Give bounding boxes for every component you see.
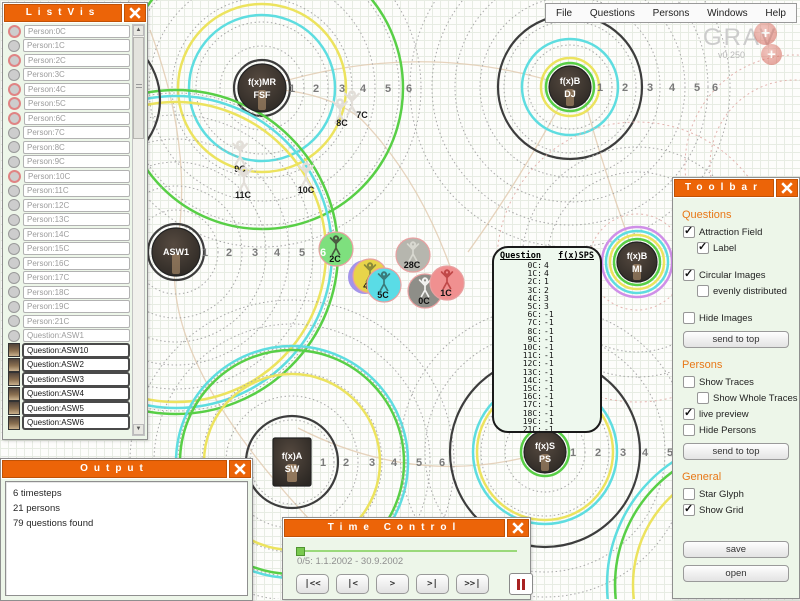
ring-number: 4 (360, 83, 367, 95)
menu-item-help[interactable]: Help (765, 8, 786, 19)
list-item-label: Person:12C (23, 199, 130, 212)
question-node-fx-b-mi[interactable]: f(x)BMI (617, 242, 657, 282)
ring-number: 5 (416, 457, 422, 469)
ring-number: 2 (313, 83, 319, 95)
list-item[interactable]: Question:ASW6 (5, 416, 145, 431)
checkbox-row: Star Glyph (683, 488, 799, 500)
ring-number: 6 (406, 83, 412, 95)
list-item-label: Person:14C (23, 228, 130, 241)
ring-number: 6 (712, 82, 718, 94)
person-status-icon (8, 69, 20, 81)
question-photo-icon (8, 358, 20, 372)
checkbox-label: evenly distributed (713, 286, 787, 297)
list-item-label: Question:ASW6 (23, 416, 129, 429)
question-photo-icon (8, 401, 20, 415)
list-item-label: Person:10C (24, 170, 130, 183)
menu-item-persons[interactable]: Persons (653, 8, 690, 19)
ring-number: 5 (385, 83, 391, 95)
list-item[interactable]: Person:6C (5, 111, 145, 126)
ghost-person-label: 11C (235, 190, 252, 200)
question-node-fx-s-ps[interactable]: f(x)SPS (524, 431, 566, 473)
output-panel: Output 6 timesteps21 persons79 questions… (0, 458, 253, 601)
person-status-icon (8, 112, 21, 125)
list-item[interactable]: Question:ASW3 (5, 372, 145, 387)
person-bubble-28C[interactable]: 28C (396, 238, 430, 272)
checkbox-label: Hide Images (699, 313, 752, 324)
close-icon[interactable] (124, 4, 146, 22)
person-status-icon (8, 40, 20, 52)
person-status-icon (8, 97, 21, 110)
person-status-icon (8, 199, 20, 211)
checkbox-hide-persons[interactable] (683, 424, 695, 436)
time-button[interactable]: |<< (296, 574, 329, 594)
ring-number: 1 (597, 82, 603, 94)
question-node-label: f(x)B (560, 76, 581, 86)
listvis-titlebar[interactable]: ListVis (3, 3, 147, 23)
list-item[interactable]: Question:ASW5 (5, 401, 145, 416)
checkbox-row: Show Grid (683, 504, 799, 516)
checkbox-label: Show Traces (699, 377, 754, 388)
person-status-icon (8, 301, 20, 313)
time-button[interactable]: > (376, 574, 409, 594)
list-item[interactable]: Person:19C (5, 300, 145, 315)
person-bubble-label: 28C (404, 260, 421, 270)
checkbox-attraction-field[interactable] (683, 226, 695, 238)
ring-number: 5 (694, 82, 700, 94)
list-item-label: Question:ASW5 (23, 402, 129, 415)
open-button[interactable]: open (683, 565, 789, 582)
question-value-table[interactable]: Question f(x)SPS 0C:41C:42C:13C:24C:35C:… (492, 246, 602, 433)
time-buttons: |<<|<>>|>>| (296, 573, 533, 595)
list-item-label: Question:ASW2 (23, 358, 129, 371)
list-item[interactable]: Person:9C (5, 155, 145, 170)
section-heading-questions: Questions (682, 209, 799, 221)
question-table-rows: 0C:41C:42C:13C:24C:35C:36C:-17C:-18C:-19… (500, 262, 594, 433)
list-item[interactable]: Person:14C (5, 227, 145, 242)
checkbox-show-traces[interactable] (683, 376, 695, 388)
list-item-label: Person:9C (23, 155, 130, 168)
question-node-label: f(x)MR (248, 77, 276, 87)
ring-number: 1 (289, 83, 295, 95)
ring-number: 6 (320, 247, 326, 259)
checkbox-row: Attraction Field (683, 226, 799, 238)
checkbox-evenly-distributed[interactable] (697, 285, 709, 297)
scroll-thumb[interactable] (133, 37, 144, 139)
question-table-col1: Question (500, 251, 541, 261)
close-icon[interactable] (507, 519, 529, 537)
list-item[interactable]: Question:ASW1 (5, 329, 145, 344)
output-line: 79 questions found (13, 516, 240, 531)
list-item-label: Person:1C (23, 39, 130, 52)
person-status-icon (8, 170, 21, 183)
question-node-label: MI (632, 264, 642, 274)
magnet-icon: + (754, 22, 777, 45)
close-icon[interactable] (776, 179, 798, 197)
list-item-label: Question:ASW4 (23, 387, 129, 400)
question-table-col2: f(x)SPS (558, 251, 594, 261)
person-status-icon (8, 83, 21, 96)
list-item-label: Question:ASW1 (23, 329, 130, 342)
list-item-label: Person:21C (23, 315, 130, 328)
list-item[interactable]: Person:0C (5, 24, 145, 39)
checkbox-live-preview[interactable] (683, 408, 695, 420)
checkbox-label: Star Glyph (699, 489, 744, 500)
list-item-label: Person:2C (24, 54, 130, 67)
list-item[interactable]: Person:4C (5, 82, 145, 97)
person-status-icon (8, 330, 20, 342)
checkbox-label: Circular Images (699, 270, 766, 281)
app-window: { "menu": {"items": [{"label":"File"},{"… (0, 0, 800, 599)
logo-title: GRAV (703, 26, 800, 50)
checkbox-row: live preview (683, 408, 799, 420)
person-status-icon (8, 185, 20, 197)
list-item-label: Person:7C (23, 126, 130, 139)
send-to-top-button[interactable]: send to top (683, 331, 789, 348)
list-item-label: Person:16C (23, 257, 130, 270)
logo-version: v0.250 (718, 50, 800, 60)
checkbox-label[interactable] (697, 242, 709, 254)
app-logo: GRAV v0.250 + + (703, 26, 800, 76)
list-item-label: Person:11C (23, 184, 130, 197)
ring-number: 3 (647, 82, 653, 94)
person-status-icon (8, 286, 20, 298)
list-item-label: Person:13C (23, 213, 130, 226)
section-heading-general: General (682, 471, 799, 483)
person-bubble-label: 2C (329, 254, 341, 264)
list-item-label: Person:17C (23, 271, 130, 284)
list-item[interactable]: Question:ASW4 (5, 387, 145, 402)
ring-number: 4 (642, 447, 649, 459)
person-status-icon (8, 214, 20, 226)
list-item-label: Person:5C (24, 97, 130, 110)
ring-number: 3 (252, 247, 258, 259)
close-icon[interactable] (229, 460, 251, 478)
ghost-person-glyph (233, 142, 247, 165)
question-photo-icon (8, 343, 20, 357)
list-item-label: Person:18C (23, 286, 130, 299)
timecontrol-titlebar[interactable]: Time Control (283, 518, 530, 538)
checkbox-row: Circular Images (683, 269, 799, 281)
listvis-scrollbar[interactable]: ▲ ▼ (132, 24, 145, 436)
time-button[interactable]: >| (416, 574, 449, 594)
menu-item-windows[interactable]: Windows (707, 8, 748, 19)
list-item[interactable]: Person:11C (5, 184, 145, 199)
scroll-down-icon[interactable]: ▼ (133, 424, 144, 435)
checkbox-circular-images[interactable] (683, 269, 695, 281)
question-node-label: f(x)B (627, 251, 648, 261)
list-item-label: Person:0C (24, 25, 130, 38)
save-button[interactable]: save (683, 541, 789, 558)
question-node-asw1[interactable]: ASW1 (152, 228, 200, 276)
checkbox-star-glyph[interactable] (683, 488, 695, 500)
question-node-label: f(x)A (282, 451, 303, 461)
list-item-label: Person:3C (23, 68, 130, 81)
person-status-icon (8, 127, 20, 139)
person-status-icon (8, 272, 20, 284)
checkbox-row: Show Whole Traces (697, 392, 799, 404)
ring-number: 1 (320, 457, 326, 469)
list-item-label: Person:15C (23, 242, 130, 255)
ring-number: 2 (595, 447, 601, 459)
person-status-icon (8, 54, 21, 67)
question-node-label: FSF (254, 90, 272, 100)
checkbox-row: Label (697, 242, 799, 254)
list-item-label: Question:ASW10 (23, 344, 129, 357)
question-node-label: SW (285, 464, 300, 474)
ring-number: 2 (622, 82, 628, 94)
question-node-label: ASW1 (163, 247, 189, 257)
list-item[interactable]: Person:18C (5, 285, 145, 300)
list-item[interactable]: Person:15C (5, 242, 145, 257)
ring-number: 3 (369, 457, 375, 469)
checkbox-hide-images[interactable] (683, 312, 695, 324)
question-photo-icon (8, 387, 20, 401)
list-item-label: Person:6C (24, 112, 130, 125)
ring-number: 4 (274, 247, 281, 259)
ring-number: 6 (439, 457, 445, 469)
checkbox-label: live preview (699, 409, 749, 420)
output-log: 6 timesteps21 persons79 questions found (5, 481, 248, 596)
ghost-person-label: 8C (336, 118, 348, 128)
list-item-label: Person:19C (23, 300, 130, 313)
listvis-title: ListVis (4, 4, 122, 22)
ring-number: 1 (202, 247, 208, 259)
list-item[interactable]: Person:3C (5, 68, 145, 83)
toolbar-titlebar[interactable]: Toolbar (673, 178, 799, 198)
question-node-label: DJ (564, 89, 576, 99)
list-item-label: Person:8C (23, 141, 130, 154)
menu-bar: FileQuestionsPersonsWindowsHelp (545, 3, 797, 23)
toolbar-title: Toolbar (674, 179, 774, 197)
menu-item-file[interactable]: File (556, 8, 572, 19)
timecontrol-panel: Time Control 0/5: 1.1.2002 - 30.9.2002 |… (282, 517, 531, 600)
list-item[interactable]: Person:13C (5, 213, 145, 228)
list-item[interactable]: Person:17C (5, 271, 145, 286)
person-status-icon (8, 315, 20, 327)
send-to-top-button[interactable]: send to top (683, 443, 789, 460)
checkbox-label: Attraction Field (699, 227, 762, 238)
ring-number: 3 (620, 447, 626, 459)
list-item[interactable]: Question:ASW2 (5, 358, 145, 373)
timecontrol-title: Time Control (284, 519, 505, 537)
ring-number: 3 (339, 83, 345, 95)
pause-button[interactable] (509, 573, 533, 595)
ring-number: 2 (226, 247, 232, 259)
question-photo-icon (8, 416, 20, 430)
output-titlebar[interactable]: Output (1, 459, 252, 479)
checkbox-label: Show Grid (699, 505, 743, 516)
ring-number: 2 (343, 457, 349, 469)
question-table-header: Question f(x)SPS (500, 251, 594, 261)
person-status-icon (8, 243, 20, 255)
checkbox-row: Hide Persons (683, 424, 799, 436)
question-node-fx-a-sw[interactable]: f(x)ASW (273, 438, 311, 486)
checkbox-label: Hide Persons (699, 425, 756, 436)
output-line: 21 persons (13, 501, 240, 516)
output-line: 6 timesteps (13, 486, 240, 501)
checkbox-label: Show Whole Traces (713, 393, 797, 404)
list-item[interactable]: Person:7C (5, 126, 145, 141)
checkbox-row: evenly distributed (697, 285, 799, 297)
person-bubble-label: 0C (418, 296, 430, 306)
list-item[interactable]: Person:1C (5, 39, 145, 54)
checkbox-show-whole-traces[interactable] (697, 392, 709, 404)
list-item[interactable]: Person:10C (5, 169, 145, 184)
section-heading-persons: Persons (682, 359, 799, 371)
ring-number: 1 (570, 447, 576, 459)
person-status-icon (8, 25, 21, 38)
listvis-panel: ListVis Person:0CPerson:1CPerson:2CPerso… (2, 2, 148, 440)
question-photo-icon (8, 372, 20, 386)
time-slider-track (296, 550, 517, 552)
time-slider-handle[interactable] (296, 547, 305, 556)
ghost-person-label: 10C (298, 185, 315, 195)
list-item[interactable]: Question:ASW10 (5, 343, 145, 358)
question-node-fx-b-dj[interactable]: f(x)BDJ (549, 66, 591, 108)
list-item[interactable]: Person:8C (5, 140, 145, 155)
person-bubbles: 2C4C5C28C0C1C (319, 232, 464, 308)
time-button[interactable]: >>| (456, 574, 489, 594)
person-status-icon (8, 141, 20, 153)
checkbox-row: Hide Images (683, 312, 799, 324)
question-node-label: PS (539, 454, 551, 464)
list-item-label: Question:ASW3 (23, 373, 129, 386)
ring-number: 4 (391, 457, 398, 469)
time-slider[interactable] (296, 547, 517, 555)
toolbar-body: QuestionsAttraction FieldLabelCircular I… (673, 209, 799, 582)
list-item[interactable]: Person:21C (5, 314, 145, 329)
menu-item-questions[interactable]: Questions (590, 8, 635, 19)
list-item[interactable]: Person:5C (5, 97, 145, 112)
person-status-icon (8, 156, 20, 168)
time-button[interactable]: |< (336, 574, 369, 594)
question-node-label: f(x)S (535, 441, 555, 451)
scroll-up-icon[interactable]: ▲ (133, 25, 144, 36)
listvis-list: Person:0CPerson:1CPerson:2CPerson:3CPers… (5, 24, 145, 437)
time-status: 0/5: 1.1.2002 - 30.9.2002 (297, 556, 403, 567)
list-item[interactable]: Person:16C (5, 256, 145, 271)
person-status-icon (8, 228, 20, 240)
person-bubble-label: 5C (377, 290, 389, 300)
toolbar-panel: Toolbar QuestionsAttraction FieldLabelCi… (672, 177, 800, 599)
ghost-person-label: 7C (356, 110, 368, 120)
ring-number: 4 (669, 82, 676, 94)
ring-number: 5 (299, 247, 305, 259)
top-labels: 6 (320, 247, 326, 259)
checkbox-label: Label (713, 243, 736, 254)
list-item[interactable]: Person:2C (5, 53, 145, 68)
output-title: Output (2, 460, 227, 478)
checkbox-row: Show Traces (683, 376, 799, 388)
list-item-label: Person:4C (24, 83, 130, 96)
person-bubble-label: 1C (440, 288, 452, 298)
checkbox-show-grid[interactable] (683, 504, 695, 516)
question-table-row: 21C:-1 (500, 426, 594, 433)
magnet-icon: + (761, 44, 782, 65)
person-bubble-5C[interactable]: 5C (367, 268, 401, 302)
person-status-icon (8, 257, 20, 269)
person-bubble-1C[interactable]: 1C (430, 266, 464, 300)
question-node-fx-mr-fsf[interactable]: f(x)MRFSF (238, 64, 286, 112)
list-item[interactable]: Person:12C (5, 198, 145, 213)
